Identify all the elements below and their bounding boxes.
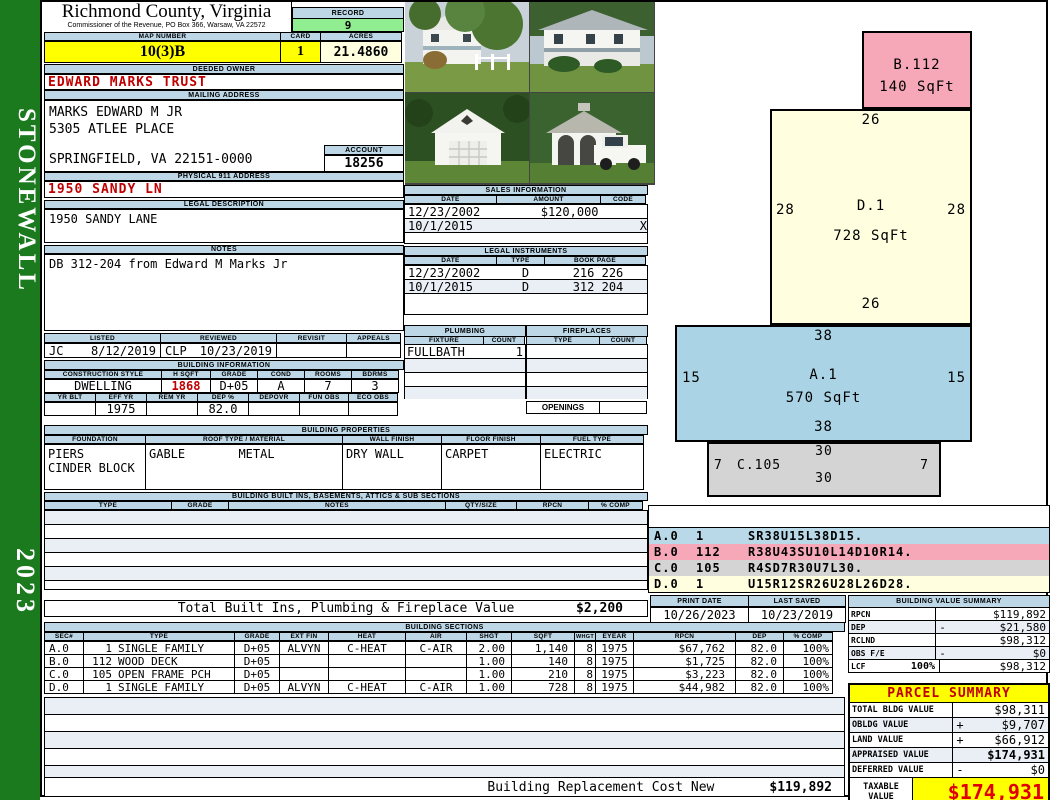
bs-grade: D+05	[234, 667, 280, 681]
acres-value: 21.4860	[320, 41, 402, 63]
reviewed-label: REVIEWED	[160, 333, 277, 343]
bs-whgt: 8	[574, 641, 596, 655]
bvs-sign: -	[935, 647, 949, 659]
print-info-headers: PRINT DATE LAST SAVED	[650, 595, 847, 607]
account-value: 18256	[324, 155, 404, 172]
bs-rpcn: $3,223	[633, 667, 736, 681]
photo-grid	[405, 2, 655, 185]
legend-num: 1	[696, 577, 748, 591]
ps-label: APPRAISED VALUE	[850, 750, 952, 760]
built-ins-headers: TYPE GRADE NOTES QTY/SIZE RPCN % COMP	[44, 501, 648, 510]
openings-value	[599, 401, 647, 414]
last-saved-value: 10/23/2019	[748, 607, 846, 623]
bi-qty-label: QTY/SIZE	[445, 501, 517, 510]
fuel-type-label: FUEL TYPE	[540, 435, 644, 444]
bi-rpcn-label: RPCN	[516, 501, 589, 510]
building-properties-headers: FOUNDATION ROOF TYPE / MATERIAL WALL FIN…	[44, 435, 648, 444]
fixture-count-label: COUNT	[483, 336, 525, 345]
bs-air-label: AIR	[405, 632, 467, 641]
built-ins-title: BUILDING BUILT INS, BASEMENTS, ATTICS & …	[44, 492, 648, 501]
replacement-cost-value: $119,892	[769, 780, 832, 795]
sketch-d-dim-top: 26	[770, 113, 972, 128]
appeals-value	[346, 343, 401, 358]
bs-sec: B.0	[44, 654, 84, 668]
bs-rpcn: $44,982	[633, 680, 736, 694]
bs-eyear-label: EYEAR	[595, 632, 634, 641]
hsqft-value: 1868	[161, 379, 211, 393]
bvs-sign	[939, 660, 953, 672]
parcel-summary-title: PARCEL SUMMARY	[850, 685, 1048, 703]
bs-type-num: 1	[84, 642, 112, 655]
bdrms-label: BDRMS	[351, 370, 399, 379]
building-info-values-2: 1975 82.0	[44, 402, 404, 416]
foundation-line1: PIERS	[48, 447, 135, 461]
bs-type-num: 105	[84, 668, 112, 681]
legend-row-a: A.0 1 SR38U15L38D15.	[649, 528, 1049, 544]
bs-sqft: 1,140	[511, 641, 575, 655]
sketch-legend: A.0 1 SR38U15L38D15. B.0 112 R38U43SU10L…	[648, 527, 1050, 593]
ps-label: LAND VALUE	[850, 735, 952, 745]
rooms-value: 7	[304, 379, 352, 393]
wall-finish-value: DRY WALL	[342, 444, 442, 490]
bs-type-name: WOOD DECK	[112, 655, 178, 668]
building-information-title: BUILDING INFORMATION	[44, 360, 404, 370]
sales-headers: DATE AMOUNT CODE	[404, 195, 648, 204]
sketch-a-sqft: 570 SqFt	[675, 391, 972, 406]
ps-value: $174,931	[967, 748, 1048, 762]
bvs-sign	[935, 634, 949, 646]
roof-type-value: GABLE	[146, 447, 211, 461]
mailing-line2: 5305 ATLEE PLACE	[49, 121, 403, 138]
sales-amount-label: AMOUNT	[496, 195, 601, 204]
card-label: CARD	[280, 32, 321, 41]
sketch-b-sqft: 140 SqFt	[862, 80, 972, 95]
ps-row-deferred: DEFERRED VALUE - $0	[850, 762, 1048, 777]
appeals-label: APPEALS	[346, 333, 401, 343]
cond-label: COND	[257, 370, 305, 379]
notes-label: NOTES	[44, 245, 404, 254]
instrument-rows: 12/23/2002 D 216 226 10/1/2015 D 312 204	[404, 265, 648, 315]
taxable-value-amount: $174,931	[913, 778, 1048, 800]
physical-address-value: 1950 SANDY LN	[44, 181, 404, 198]
ps-value: $98,311	[967, 703, 1048, 717]
ps-label: DEFERRED VALUE	[850, 765, 952, 775]
building-value-summary-title: BUILDING VALUE SUMMARY	[849, 596, 1049, 608]
taxable-value-label: TAXABLE VALUE	[850, 778, 913, 800]
funobs-label: FUN OBS	[299, 393, 349, 402]
sales-row: 10/1/2015 X	[405, 219, 647, 233]
replacement-cost-label: Building Replacement Cost New	[487, 780, 714, 795]
legend-path: R4SD7R30U7L30.	[748, 561, 863, 575]
bvs-value: $98,312	[953, 660, 1049, 673]
legend-path: U15R12SR26U28L26D28.	[748, 577, 913, 591]
roof-label: ROOF TYPE / MATERIAL	[145, 435, 343, 444]
foundation-line2: CINDER BLOCK	[48, 461, 135, 475]
bs-sec: C.0	[44, 667, 84, 681]
parcel-summary: PARCEL SUMMARY TOTAL BLDG VALUE $98,311 …	[848, 683, 1050, 800]
legend-num: 1	[696, 529, 748, 543]
openings-label: OPENINGS	[526, 401, 600, 414]
fuel-type-value: ELECTRIC	[540, 444, 644, 490]
depovr-value	[248, 402, 300, 416]
yrblt-value	[44, 402, 96, 416]
bs-sqft: 728	[511, 680, 575, 694]
yrblt-label: YR BLT	[44, 393, 96, 402]
dep-pct-label: DEP %	[197, 393, 249, 402]
building-properties-title: BUILDING PROPERTIES	[44, 425, 648, 435]
sketch-d-dim-right: 28	[932, 203, 966, 218]
bs-whgt: 8	[574, 667, 596, 681]
legend-sec: A.0	[649, 529, 696, 543]
bs-shgt: 2.00	[466, 641, 512, 655]
bs-dep: 82.0	[735, 680, 784, 694]
deeded-owner-label: DEEDED OWNER	[44, 64, 404, 74]
bs-sec-label: SEC#	[44, 632, 84, 641]
sale-date: 10/1/2015	[405, 219, 497, 232]
fixture-label: FIXTURE	[404, 336, 484, 345]
bs-grade: D+05	[234, 641, 280, 655]
bs-sqft: 210	[511, 667, 575, 681]
bi-notes-label: NOTES	[228, 501, 446, 510]
bi-type-label: TYPE	[44, 501, 172, 510]
bs-sec: D.0	[44, 680, 84, 694]
sale-amount	[497, 219, 608, 232]
legend-path: SR38U15L38D15.	[748, 529, 863, 543]
bs-air: C-AIR	[405, 680, 467, 694]
rooms-label: ROOMS	[304, 370, 352, 379]
bs-comp: 100%	[783, 654, 833, 668]
sketch-d-dim-bottom: 26	[770, 297, 972, 312]
sales-date-label: DATE	[404, 195, 497, 204]
instrument-row: 12/23/2002 D 216 226	[405, 266, 647, 280]
bs-heat: C-HEAT	[328, 680, 406, 694]
roof-material-value: METAL	[211, 447, 302, 461]
bs-dep: 82.0	[735, 641, 784, 655]
card-value: 1	[280, 41, 321, 63]
acres-label: ACRES	[320, 32, 402, 41]
legend-path: R38U43SU10L14D10R14.	[748, 545, 913, 559]
legend-row-b: B.0 112 R38U43SU10L14D10R14.	[649, 544, 1049, 560]
bs-comp: 100%	[783, 641, 833, 655]
legend-num: 112	[696, 545, 748, 559]
inst-date-label: DATE	[404, 256, 497, 265]
effyr-label: EFF YR	[95, 393, 147, 402]
ps-label: TOTAL BLDG VALUE	[850, 705, 952, 715]
sale-code: X	[609, 219, 647, 232]
bs-grade-label: GRADE	[234, 632, 280, 641]
sketch-legend-spacer	[648, 505, 1050, 528]
construction-style-value: DWELLING	[44, 379, 162, 393]
legal-description-value: 1950 SANDY LANE	[44, 209, 404, 243]
print-info-values: 10/26/2023 10/23/2019	[650, 607, 847, 623]
wall-finish-label: WALL FINISH	[342, 435, 442, 444]
built-ins-empty-rows	[44, 510, 648, 590]
bs-shgt: 1.00	[466, 654, 512, 668]
ecoobs-value	[348, 402, 398, 416]
building-sections-empty-rows	[44, 697, 845, 777]
bs-extfin-label: EXT FIN	[279, 632, 329, 641]
map-number-label: MAP NUMBER	[44, 32, 281, 41]
grade-label: GRADE	[210, 370, 258, 379]
photo-garage	[405, 93, 529, 183]
bs-comp-label: % COMP	[783, 632, 833, 641]
bs-type-num: 112	[84, 655, 112, 668]
bs-type-name: SINGLE FAMILY	[112, 642, 204, 655]
floor-finish-value: CARPET	[441, 444, 541, 490]
funobs-value	[299, 402, 349, 416]
building-sections-rows: A.0 1SINGLE FAMILY D+05 ALVYN C-HEAT C-A…	[44, 641, 845, 694]
mailing-line1: MARKS EDWARD M JR	[49, 104, 403, 121]
bs-whgt: 8	[574, 654, 596, 668]
revisit-value	[276, 343, 347, 358]
ps-sign	[952, 748, 967, 762]
bvs-value: $0	[949, 647, 1049, 660]
bvs-label: RCLND	[849, 636, 935, 645]
building-sections-headers: SEC# TYPE GRADE EXT FIN HEAT AIR SHGT SQ…	[44, 632, 845, 641]
bs-air	[405, 667, 467, 681]
sketch-a-dim-right: 15	[932, 371, 966, 386]
reviewed-by: CLP	[165, 344, 187, 358]
sale-code	[609, 205, 647, 218]
bs-air	[405, 654, 467, 668]
sketch-c-dim-top: 30	[707, 444, 941, 459]
deeded-owner-name: EDWARD MARKS TRUST	[44, 74, 404, 90]
photo-gazebo-truck	[530, 93, 654, 183]
building-info-headers-2: YR BLT EFF YR REM YR DEP % DEPOVR FUN OB…	[44, 393, 404, 402]
revisit-label: REVISIT	[276, 333, 347, 343]
inst-bookpage: 216 226	[550, 266, 646, 279]
legend-row-c: C.0 105 R4SD7R30U7L30.	[649, 560, 1049, 576]
bs-sqft-label: SQFT	[511, 632, 575, 641]
sales-row: 12/23/2002 $120,000	[405, 205, 647, 219]
bvs-value: $21,580	[949, 621, 1049, 634]
inst-date: 10/1/2015	[405, 280, 501, 293]
map-card-acres-values: 10(3)B 1 21.4860	[44, 41, 404, 63]
district-spine: STONEWALL 2023	[0, 0, 40, 800]
listed-by: JC	[49, 344, 63, 358]
legend-sec: C.0	[649, 561, 696, 575]
building-info-headers-1: CONSTRUCTION STYLE H SQFT GRADE COND ROO…	[44, 370, 404, 379]
inst-bookpage: 312 204	[550, 280, 646, 293]
ps-label: OBLDG VALUE	[850, 720, 952, 730]
inst-type: D	[501, 266, 550, 279]
building-section-row: C.0 105OPEN FRAME PCH D+05 1.00 210 8 19…	[44, 667, 845, 681]
bvs-value: $119,892	[949, 608, 1049, 621]
bvs-lcf-pct: 100%	[911, 661, 935, 672]
building-section-row: D.0 1SINGLE FAMILY D+05 ALVYN C-HEAT C-A…	[44, 680, 845, 694]
ps-sign: -	[952, 763, 967, 777]
bs-sec: A.0	[44, 641, 84, 655]
bs-extfin: ALVYN	[279, 680, 329, 694]
photo-house-front-right	[530, 2, 654, 92]
district-name: STONEWALL	[0, 108, 40, 293]
bs-air: C-AIR	[405, 641, 467, 655]
title-block: Richmond County, Virginia Commissioner o…	[42, 2, 292, 32]
building-section-row: A.0 1SINGLE FAMILY D+05 ALVYN C-HEAT C-A…	[44, 641, 845, 655]
inst-bookpage-label: BOOK PAGE	[544, 256, 646, 265]
hsqft-label: H SQFT	[161, 370, 211, 379]
fireplace-type-label: TYPE	[526, 336, 600, 345]
bs-shgt: 1.00	[466, 667, 512, 681]
bs-extfin	[279, 667, 329, 681]
physical-address-label: PHYSICAL 911 ADDRESS	[44, 172, 404, 181]
floor-finish-label: FLOOR FINISH	[441, 435, 541, 444]
ps-sign: +	[952, 733, 967, 747]
bs-type-name: SINGLE FAMILY	[112, 681, 204, 694]
bs-type-label: TYPE	[83, 632, 235, 641]
tax-year: 2023	[0, 548, 40, 616]
foundation-label: FOUNDATION	[44, 435, 146, 444]
bs-comp: 100%	[783, 667, 833, 681]
record-box: RECORD 9	[292, 7, 404, 32]
map-card-acres-headers: MAP NUMBER CARD ACRES	[44, 32, 404, 41]
bs-dep: 82.0	[735, 654, 784, 668]
legend-num: 105	[696, 561, 748, 575]
bs-whgt: 8	[574, 680, 596, 694]
bvs-row-rclnd: RCLND $98,312	[849, 633, 1049, 646]
sales-rows: 12/23/2002 $120,000 10/1/2015 X	[404, 204, 648, 244]
photo-house-front-left	[405, 2, 529, 92]
construction-style-label: CONSTRUCTION STYLE	[44, 370, 162, 379]
visits-values: JC 8/12/2019 CLP 10/23/2019	[44, 343, 404, 358]
bs-heat-label: HEAT	[328, 632, 406, 641]
bs-shgt: 1.00	[466, 680, 512, 694]
account-label: ACCOUNT	[324, 145, 404, 155]
bvs-label: DEP	[849, 623, 935, 632]
ps-value: $0	[967, 763, 1048, 777]
replacement-cost-row: Building Replacement Cost New $119,892	[44, 777, 845, 797]
bs-comp: 100%	[783, 680, 833, 694]
bs-dep-label: DEP	[735, 632, 784, 641]
bs-extfin: ALVYN	[279, 641, 329, 655]
print-date-label: PRINT DATE	[650, 595, 749, 607]
fireplace-count-label: COUNT	[599, 336, 647, 345]
visits-headers: LISTED REVIEWED REVISIT APPEALS	[44, 333, 404, 343]
bs-whgt-label: WHGT	[574, 632, 596, 641]
bi-comp-label: % COMP	[588, 501, 643, 510]
bvs-row-rpcn: RPCN $119,892	[849, 608, 1049, 620]
ps-value: $66,912	[967, 733, 1048, 747]
building-value-summary: BUILDING VALUE SUMMARY RPCN $119,892 DEP…	[848, 595, 1050, 673]
built-ins-total-row: Total Built Ins, Plumbing & Fireplace Va…	[44, 600, 648, 617]
bs-extfin	[279, 654, 329, 668]
bdrms-value: 3	[351, 379, 399, 393]
bs-type-num: 1	[84, 681, 112, 694]
ps-sign: +	[952, 718, 967, 732]
property-record-card: STONEWALL 2023 Richmond County, Virginia…	[0, 0, 1050, 800]
fixture-count-value: 1	[487, 345, 523, 358]
bs-eyear: 1975	[595, 641, 634, 655]
listed-date: 8/12/2019	[91, 344, 156, 358]
ps-row-total-bldg: TOTAL BLDG VALUE $98,311	[850, 703, 1048, 717]
bs-grade: D+05	[234, 680, 280, 694]
map-number-value: 10(3)B	[44, 41, 281, 63]
inst-type: D	[501, 280, 550, 293]
depovr-label: DEPOVR	[248, 393, 300, 402]
sales-information-title: SALES INFORMATION	[404, 185, 648, 195]
ps-sign	[952, 703, 967, 717]
bvs-row-obs: OBS F/E - $0	[849, 646, 1049, 659]
grade-value: D+05	[210, 379, 258, 393]
bs-dep: 82.0	[735, 667, 784, 681]
bvs-sign	[935, 608, 949, 620]
county-title: Richmond County, Virginia	[42, 2, 291, 22]
bs-grade: D+05	[234, 654, 280, 668]
reviewed-date: 10/23/2019	[200, 344, 272, 358]
taxable-value-row: TAXABLE VALUE $174,931	[850, 777, 1048, 800]
remyr-value	[146, 402, 198, 416]
sketch-d-sqft: 728 SqFt	[770, 229, 972, 244]
building-sections-title: BUILDING SECTIONS	[44, 622, 845, 632]
record-value: 9	[292, 18, 404, 32]
plumbing-table: PLUMBING FIXTURE COUNT FULLBATH 1	[404, 325, 526, 399]
sketch-a-dim-bottom: 38	[675, 420, 972, 435]
ps-row-appraised: APPRAISED VALUE $174,931	[850, 747, 1048, 762]
ps-row-obldg: OBLDG VALUE + $9,707	[850, 717, 1048, 732]
fireplaces-table: FIREPLACES TYPE COUNT OPENINGS	[526, 325, 648, 414]
bs-heat	[328, 654, 406, 668]
sketch-a-dim-top: 38	[675, 329, 972, 344]
sale-amount: $120,000	[497, 205, 608, 218]
legend-sec: B.0	[649, 545, 696, 559]
ps-row-land: LAND VALUE + $66,912	[850, 732, 1048, 747]
building-properties-values: PIERS CINDER BLOCK GABLE METAL DRY WALL …	[44, 444, 648, 490]
instrument-headers: DATE TYPE BOOK PAGE	[404, 256, 648, 265]
cond-value: A	[257, 379, 305, 393]
legend-sec: D.0	[649, 577, 696, 591]
sketch-b-name: B.112	[862, 58, 972, 73]
bvs-sign: -	[935, 621, 949, 633]
bvs-label: LCF	[851, 662, 865, 671]
remyr-label: REM YR	[146, 393, 198, 402]
bvs-row-dep: DEP - $21,580	[849, 620, 1049, 633]
listed-label: LISTED	[44, 333, 161, 343]
building-section-row: B.0 112WOOD DECK D+05 1.00 140 8 1975 $1…	[44, 654, 845, 668]
print-date-value: 10/26/2023	[650, 607, 749, 623]
mailing-address-label: MAILING ADDRESS	[44, 90, 404, 100]
bs-rpcn-label: RPCN	[633, 632, 736, 641]
inst-type-label: TYPE	[496, 256, 545, 265]
notes-value: DB 312-204 from Edward M Marks Jr	[44, 254, 404, 331]
bs-sqft: 140	[511, 654, 575, 668]
bs-eyear: 1975	[595, 654, 634, 668]
bs-rpcn: $1,725	[633, 654, 736, 668]
last-saved-label: LAST SAVED	[748, 595, 846, 607]
sales-code-label: CODE	[600, 195, 646, 204]
inst-date: 12/23/2002	[405, 266, 501, 279]
bvs-value: $98,312	[949, 634, 1049, 647]
instrument-row: 10/1/2015 D 312 204	[405, 280, 647, 294]
bs-heat	[328, 667, 406, 681]
built-ins-total-label: Total Built Ins, Plumbing & Fireplace Va…	[178, 601, 515, 616]
dep-pct-value: 82.0	[197, 402, 249, 416]
fixture-value: FULLBATH	[405, 345, 487, 358]
effyr-value: 1975	[95, 402, 147, 416]
bs-type-name: OPEN FRAME PCH	[112, 668, 211, 681]
bs-heat: C-HEAT	[328, 641, 406, 655]
built-ins-total-value: $2,200	[576, 601, 623, 616]
legal-instruments-title: LEGAL INSTRUMENTS	[404, 246, 648, 256]
bs-eyear: 1975	[595, 680, 634, 694]
bvs-row-lcf: LCF 100% $98,312	[849, 659, 1049, 672]
bs-rpcn: $67,762	[633, 641, 736, 655]
legend-row-d: D.0 1 U15R12SR26U28L26D28.	[649, 576, 1049, 592]
bs-eyear: 1975	[595, 667, 634, 681]
sketch-a-name: A.1	[675, 368, 972, 383]
bvs-label: RPCN	[849, 610, 935, 619]
sketch-c-dim-bottom: 30	[707, 471, 941, 486]
bi-grade-label: GRADE	[171, 501, 229, 510]
